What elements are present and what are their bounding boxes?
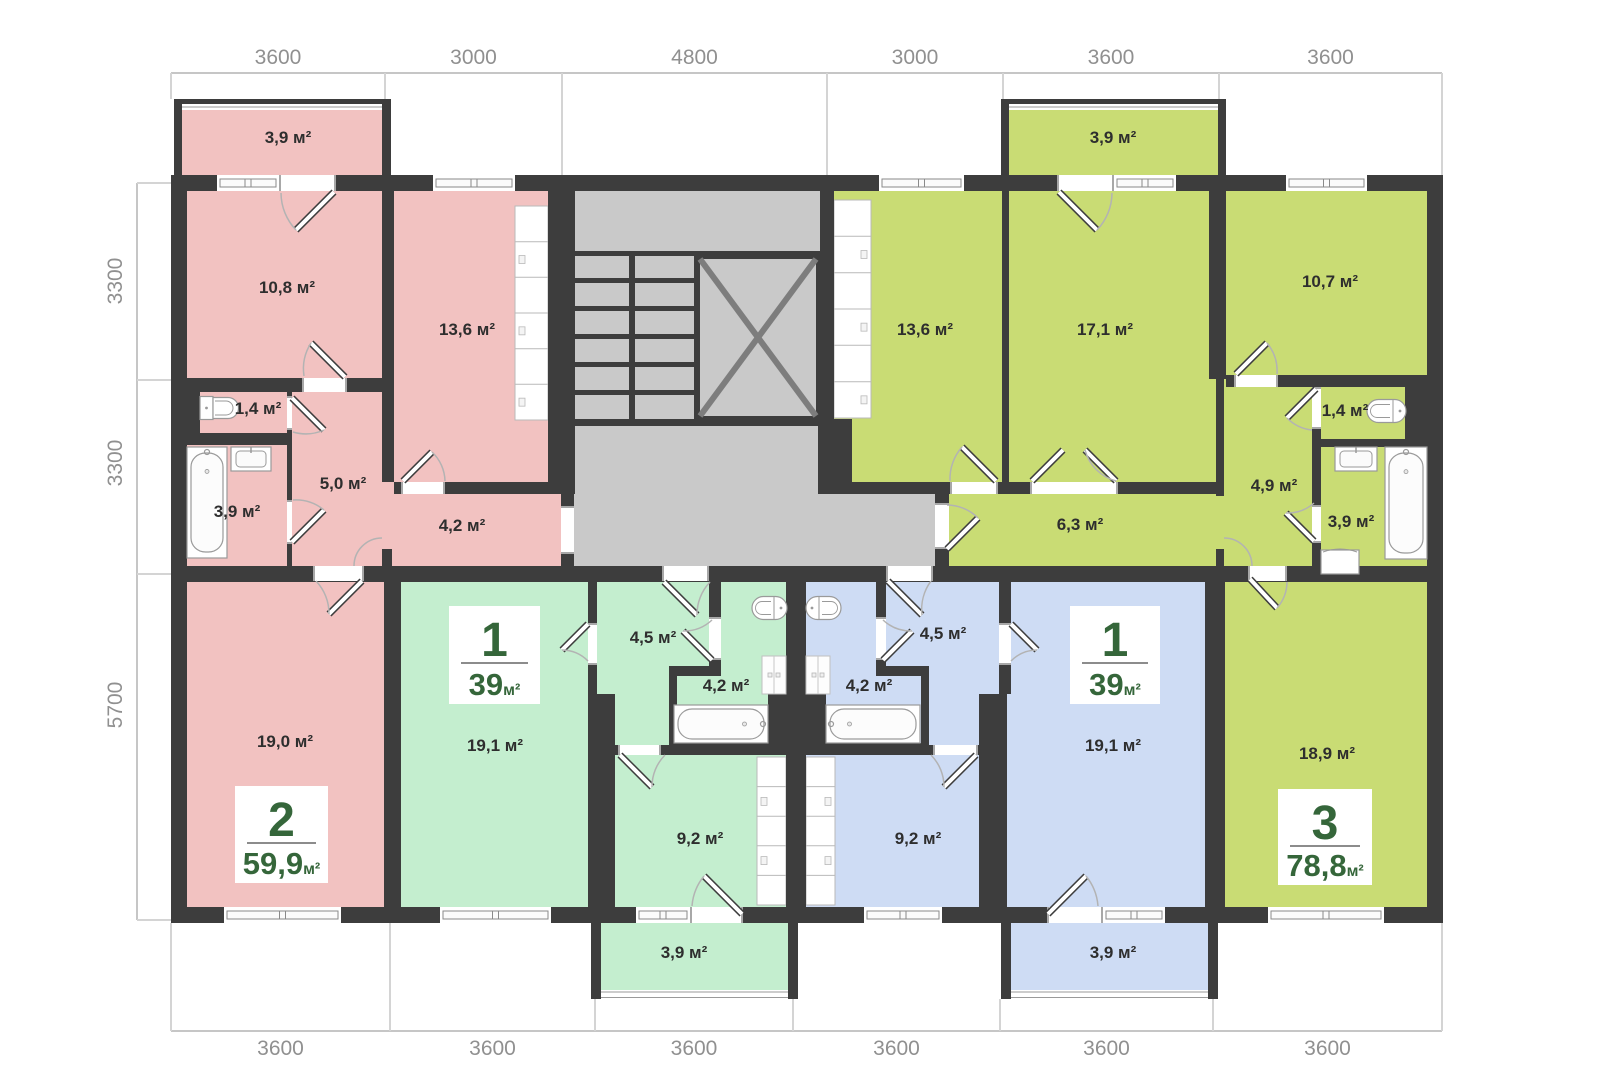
svg-text:3600: 3600 xyxy=(1088,46,1135,69)
svg-text:4,9 м²: 4,9 м² xyxy=(1251,476,1298,495)
svg-text:3,9 м²: 3,9 м² xyxy=(265,128,312,147)
svg-text:17,1 м²: 17,1 м² xyxy=(1077,320,1133,339)
svg-text:3,9 м²: 3,9 м² xyxy=(661,943,708,962)
svg-text:3600: 3600 xyxy=(1083,1037,1130,1060)
svg-text:3600: 3600 xyxy=(257,1037,304,1060)
svg-text:3,9 м²: 3,9 м² xyxy=(1090,128,1137,147)
svg-text:3,9 м²: 3,9 м² xyxy=(214,502,261,521)
svg-text:4,5 м²: 4,5 м² xyxy=(920,624,967,643)
svg-text:4,2 м²: 4,2 м² xyxy=(439,516,486,535)
svg-text:5700: 5700 xyxy=(104,682,127,729)
svg-text:2: 2 xyxy=(268,794,295,847)
svg-text:18,9 м²: 18,9 м² xyxy=(1299,744,1355,763)
svg-text:3600: 3600 xyxy=(1307,46,1354,69)
svg-text:6,3 м²: 6,3 м² xyxy=(1057,515,1104,534)
svg-text:5,0 м²: 5,0 м² xyxy=(320,474,367,493)
svg-text:10,8 м²: 10,8 м² xyxy=(259,278,315,297)
svg-text:1: 1 xyxy=(481,614,508,667)
svg-text:13,6 м²: 13,6 м² xyxy=(439,320,495,339)
svg-text:10,7 м²: 10,7 м² xyxy=(1302,272,1358,291)
svg-text:9,2 м²: 9,2 м² xyxy=(895,829,942,848)
svg-text:3000: 3000 xyxy=(450,46,497,69)
svg-text:4,2 м²: 4,2 м² xyxy=(846,676,893,695)
svg-text:19,1 м²: 19,1 м² xyxy=(467,736,523,755)
svg-text:3,9 м²: 3,9 м² xyxy=(1328,512,1375,531)
svg-text:4,5 м²: 4,5 м² xyxy=(630,628,677,647)
svg-text:3600: 3600 xyxy=(255,46,302,69)
svg-text:9,2 м²: 9,2 м² xyxy=(677,829,724,848)
svg-text:3300: 3300 xyxy=(104,258,127,305)
svg-text:3300: 3300 xyxy=(104,440,127,487)
svg-text:4,2 м²: 4,2 м² xyxy=(703,676,750,695)
svg-text:3600: 3600 xyxy=(671,1037,718,1060)
svg-text:1: 1 xyxy=(1102,614,1129,667)
svg-text:3,9 м²: 3,9 м² xyxy=(1090,943,1137,962)
svg-text:19,1 м²: 19,1 м² xyxy=(1085,736,1141,755)
svg-text:4800: 4800 xyxy=(671,46,718,69)
svg-text:1,4 м²: 1,4 м² xyxy=(235,399,282,418)
svg-text:19,0 м²: 19,0 м² xyxy=(257,732,313,751)
svg-text:3600: 3600 xyxy=(1304,1037,1351,1060)
svg-text:3: 3 xyxy=(1312,797,1339,850)
svg-text:13,6 м²: 13,6 м² xyxy=(897,320,953,339)
svg-text:3600: 3600 xyxy=(469,1037,516,1060)
svg-text:1,4 м²: 1,4 м² xyxy=(1322,401,1369,420)
svg-text:3600: 3600 xyxy=(873,1037,920,1060)
svg-text:3000: 3000 xyxy=(892,46,939,69)
